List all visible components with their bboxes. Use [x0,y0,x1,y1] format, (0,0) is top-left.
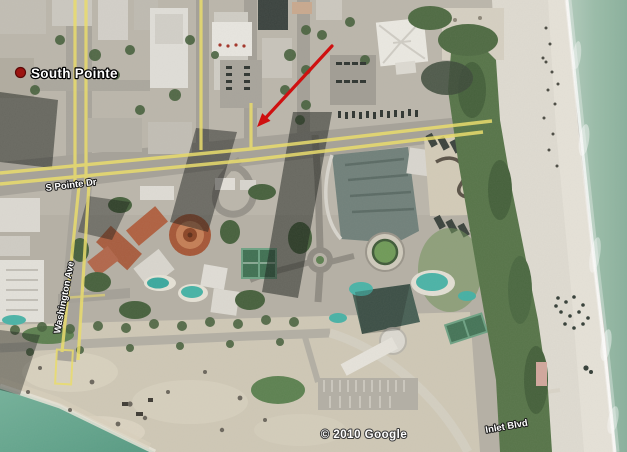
place-label-south-pointe: South Pointe [31,66,118,81]
google-attribution: © 2010 Google [321,429,408,441]
satellite-map-view[interactable]: South Pointe S Pointe Dr Washington Ave … [0,0,627,452]
place-marker-dot[interactable] [16,68,26,78]
map-canvas[interactable]: South Pointe S Pointe Dr Washington Ave … [0,0,627,452]
